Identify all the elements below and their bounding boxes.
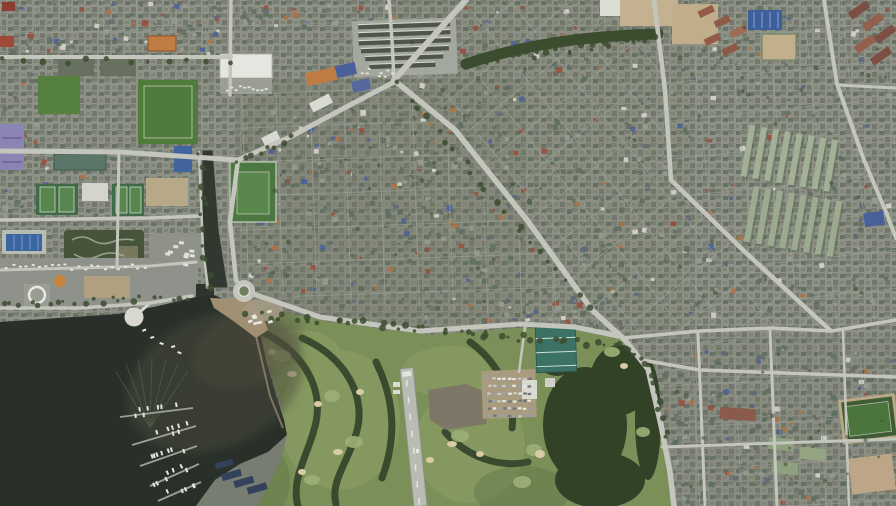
pool-building <box>748 10 782 30</box>
red-building <box>2 2 15 11</box>
satellite-image <box>0 0 896 506</box>
orange-dome <box>54 275 66 287</box>
sports-field <box>38 76 80 114</box>
teal-building-row <box>54 154 106 170</box>
sand-lot <box>146 178 188 206</box>
purple-building <box>0 124 24 170</box>
roundabout <box>233 280 255 302</box>
driving-range-building <box>535 325 577 372</box>
school-court <box>762 34 796 60</box>
school-yard <box>620 0 678 26</box>
clubhouse <box>545 378 555 387</box>
blue-building <box>863 211 885 228</box>
satellite-canvas <box>0 0 896 506</box>
clubhouse <box>522 380 537 399</box>
sports-field-large <box>138 80 198 144</box>
sand-lot <box>84 276 130 298</box>
dirt-field <box>428 384 490 430</box>
road-nw-vertical <box>230 0 231 95</box>
orange-building <box>148 36 176 51</box>
red-building <box>0 36 14 47</box>
swimming-pool <box>2 230 46 254</box>
apartment-block <box>58 58 94 76</box>
white-building <box>82 183 108 201</box>
school-court-east <box>848 453 896 494</box>
road-nw-vertical-2 <box>117 152 119 268</box>
